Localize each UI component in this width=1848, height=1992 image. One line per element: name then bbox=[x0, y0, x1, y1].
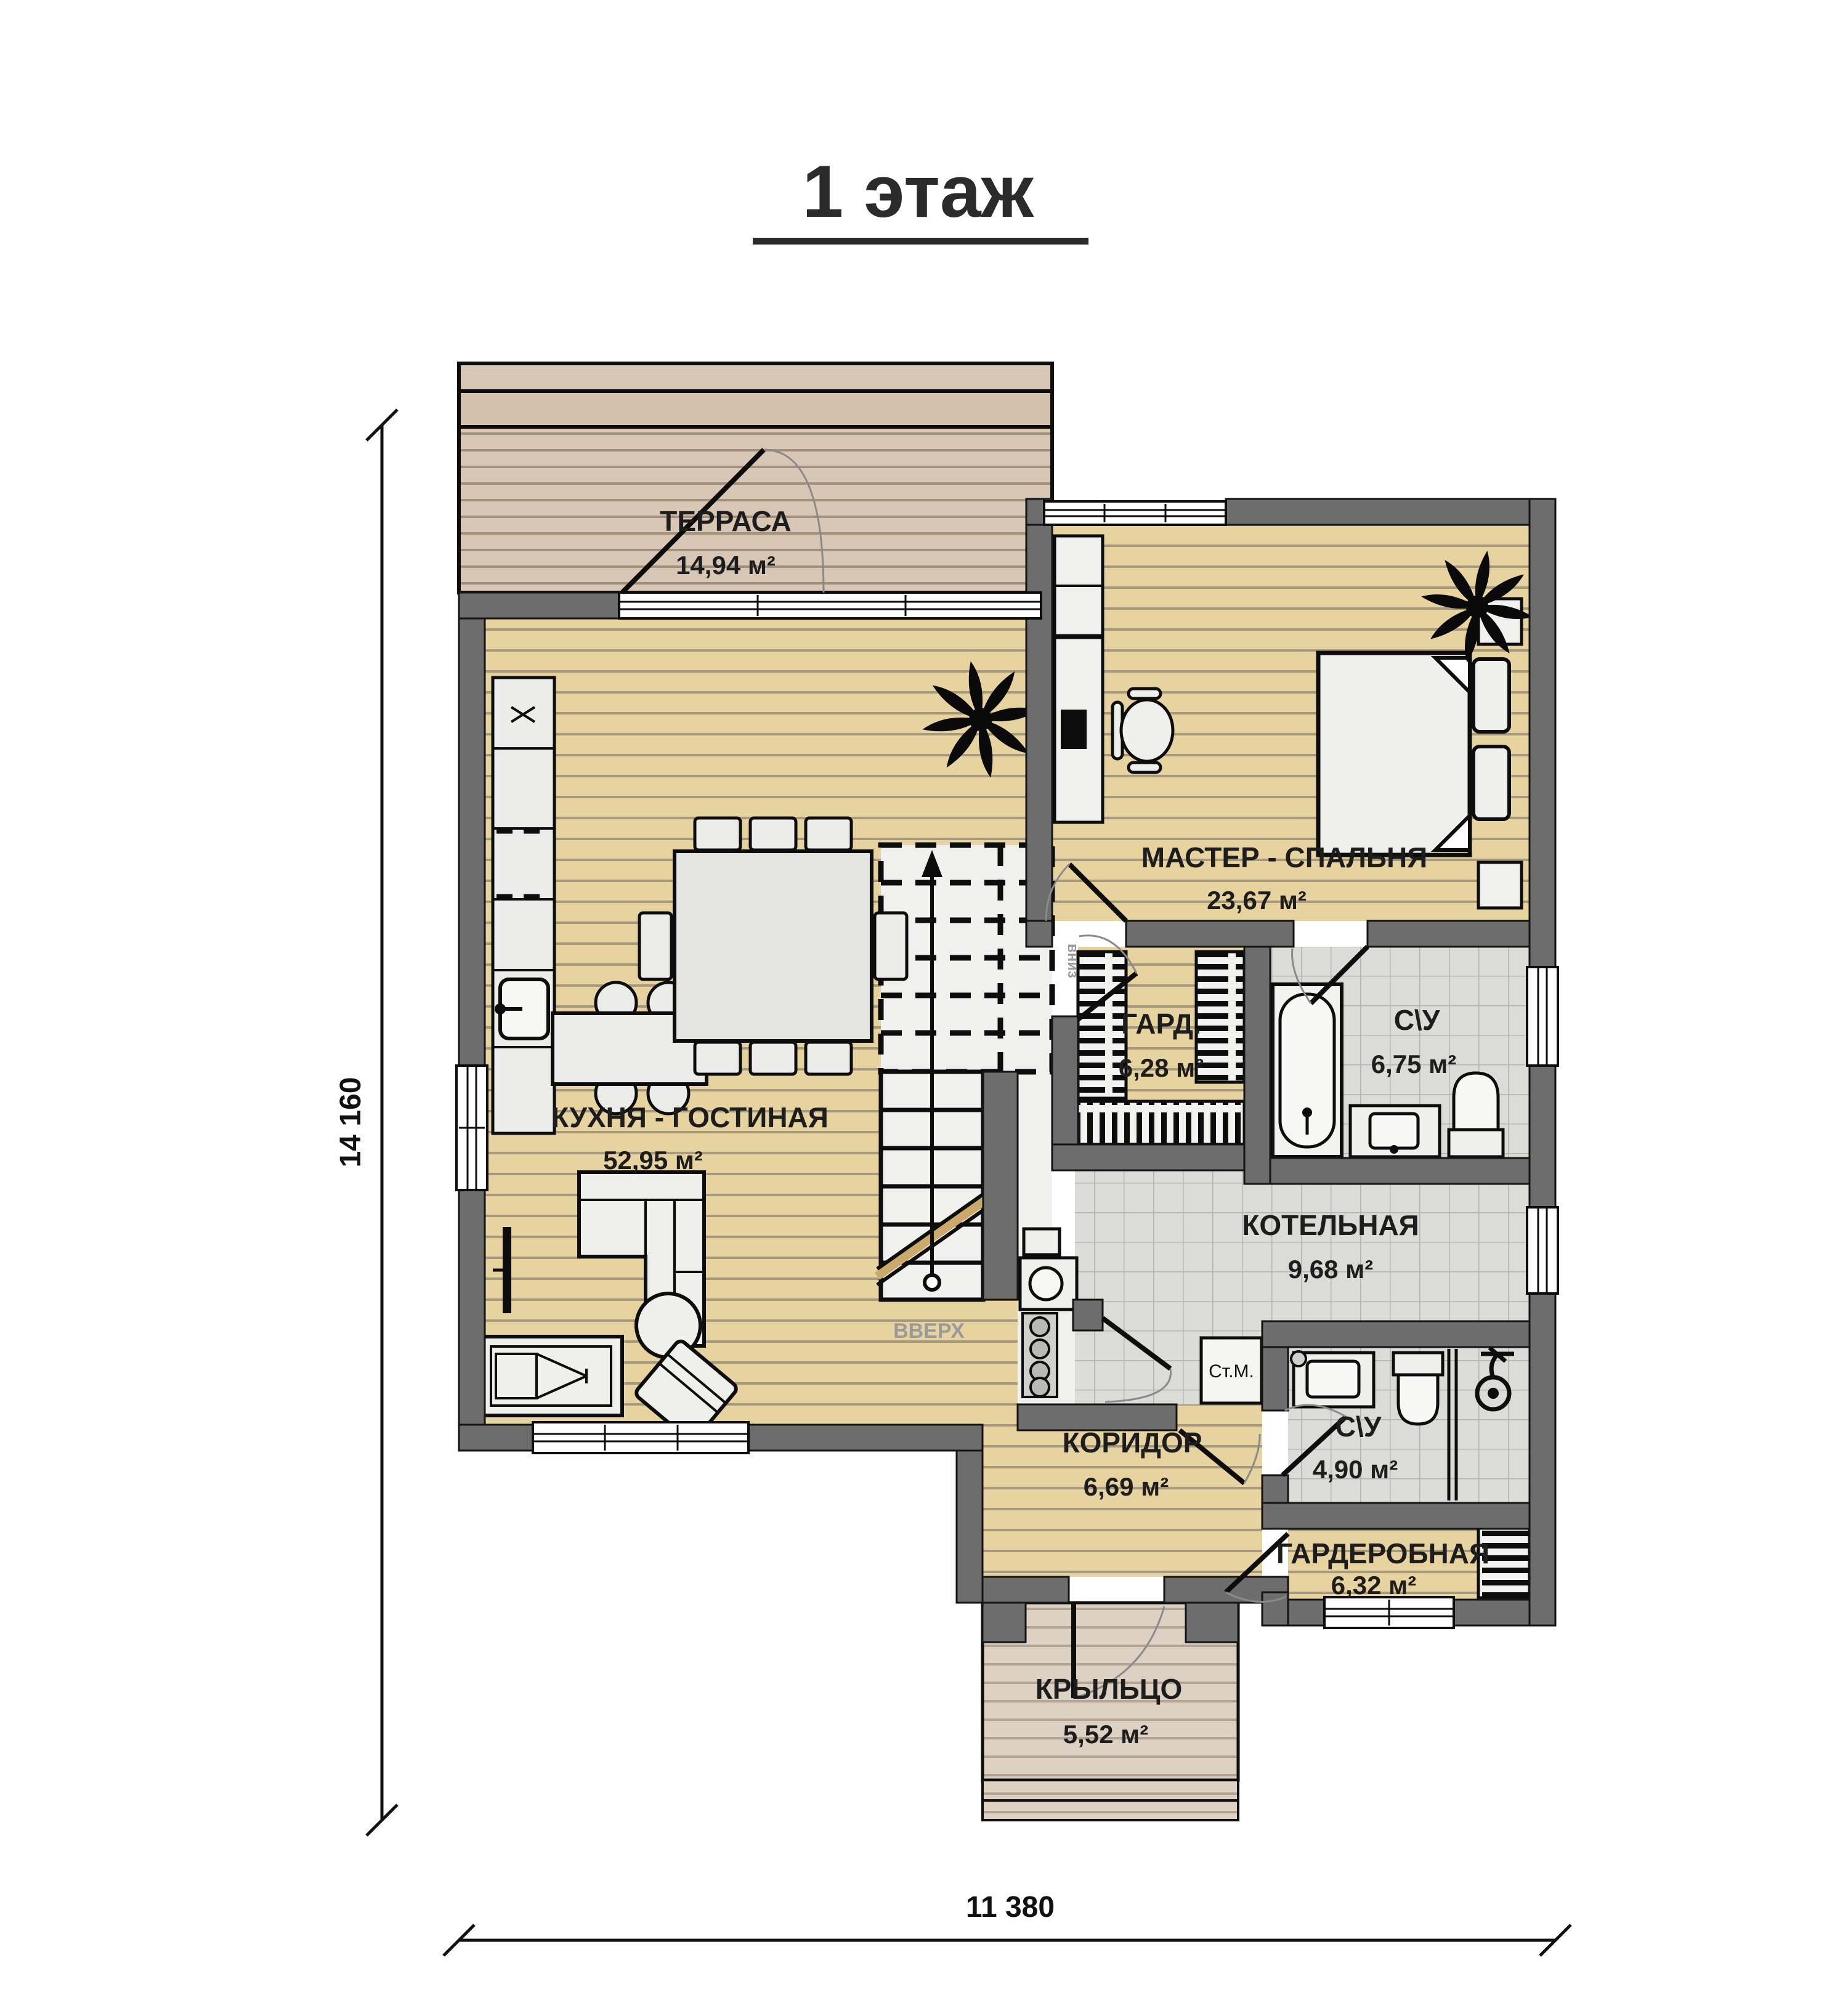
wall bbox=[957, 1451, 983, 1603]
dining-chair bbox=[750, 1042, 796, 1074]
fireplace bbox=[480, 1337, 622, 1415]
bathroom-1-vanity bbox=[1350, 1106, 1440, 1157]
wall bbox=[1270, 1158, 1530, 1184]
room-label-porch: КРЫЛЬЦО bbox=[1035, 1673, 1183, 1705]
toilet-1 bbox=[1449, 1073, 1503, 1157]
room-label-boiler: КОТЕЛЬНАЯ bbox=[1242, 1209, 1419, 1241]
window-boiler bbox=[1527, 1207, 1558, 1294]
dimension-width-label: 11 380 bbox=[966, 1891, 1055, 1924]
bedroom-closet bbox=[1055, 536, 1103, 636]
room-label-bathroom-2: С\У bbox=[1335, 1411, 1382, 1443]
room-area-kitchen: 52,95 м² bbox=[603, 1146, 703, 1175]
wall bbox=[1226, 499, 1555, 525]
wall bbox=[1530, 1294, 1555, 1626]
room-area-bathroom-1: 6,75 м² bbox=[1371, 1050, 1456, 1079]
wall bbox=[1026, 499, 1044, 525]
window-kitchen-terrace bbox=[619, 593, 1041, 618]
wall bbox=[1530, 499, 1555, 967]
wall bbox=[1530, 1066, 1555, 1207]
dining-chair bbox=[750, 818, 796, 850]
page-title: 1 этаж bbox=[753, 150, 1088, 245]
room-label-corridor: КОРИДОР bbox=[1063, 1427, 1202, 1459]
kitchen-counter bbox=[493, 678, 554, 1133]
room-label-bathroom-1: С\У bbox=[1394, 1004, 1441, 1036]
stairs-up-label: ВВЕРХ bbox=[893, 1319, 965, 1343]
room-label-kitchen: КУХНЯ - ГОСТИНАЯ bbox=[551, 1101, 829, 1133]
room-label-master: МАСТЕР - СПАЛЬНЯ bbox=[1141, 841, 1428, 873]
floor-plan-page: 1 этаж bbox=[0, 0, 1848, 1992]
bathtub bbox=[1273, 984, 1342, 1157]
room-label-closet: ГАРДЕРОБНАЯ bbox=[1276, 1537, 1489, 1569]
bathroom-2-vanity bbox=[1291, 1351, 1374, 1407]
wall bbox=[459, 593, 619, 618]
dining-chair bbox=[695, 818, 740, 850]
wall bbox=[1368, 921, 1530, 947]
monitor bbox=[1061, 710, 1087, 749]
terrace-band-1 bbox=[459, 363, 1052, 391]
wall bbox=[983, 1603, 1026, 1642]
wall bbox=[1026, 499, 1052, 921]
porch-step-2 bbox=[983, 1800, 1238, 1820]
wall bbox=[748, 1425, 983, 1451]
wall bbox=[1244, 947, 1270, 1184]
wall bbox=[1126, 921, 1294, 947]
window-left-wall bbox=[456, 1066, 487, 1190]
wall bbox=[459, 1425, 533, 1451]
room-area-bathroom-2: 4,90 м² bbox=[1313, 1455, 1398, 1484]
wall bbox=[983, 1577, 1069, 1603]
porch-step-1 bbox=[983, 1780, 1238, 1800]
dining-chair bbox=[695, 1042, 740, 1074]
dining-chair bbox=[806, 1042, 851, 1074]
room-label-terrace: ТЕРРАСА bbox=[660, 505, 791, 537]
dimension-height-label: 14 160 bbox=[334, 1077, 367, 1168]
nightstand bbox=[1478, 862, 1522, 908]
dining-chair bbox=[806, 818, 851, 850]
floor-plan-canvas: 1 этаж bbox=[0, 0, 1848, 1992]
wall bbox=[459, 618, 485, 1066]
window-closet-bottom bbox=[1324, 1597, 1454, 1628]
wall bbox=[1262, 1321, 1530, 1347]
dining-chair bbox=[875, 913, 907, 979]
pillow bbox=[1473, 659, 1509, 732]
desk bbox=[1055, 638, 1103, 822]
dining-set bbox=[639, 818, 907, 1074]
wall bbox=[1262, 1503, 1530, 1529]
room-area-terrace: 14,94 м² bbox=[676, 551, 776, 580]
room-area-wardrobe: 6,28 м² bbox=[1119, 1053, 1204, 1082]
wardrobe-unit bbox=[1061, 1101, 1244, 1144]
wall bbox=[1288, 1600, 1324, 1626]
room-label-wardrobe: ГАРД. bbox=[1121, 1008, 1201, 1040]
room-area-boiler: 9,68 м² bbox=[1288, 1255, 1373, 1284]
washing-machine-label: Ст.М. bbox=[1209, 1361, 1254, 1382]
room-area-closet: 6,32 м² bbox=[1331, 1571, 1416, 1600]
wall bbox=[1262, 1347, 1288, 1411]
room-area-master: 23,67 м² bbox=[1207, 886, 1307, 915]
pillow bbox=[1473, 747, 1509, 819]
washing-machine: Ст.М. bbox=[1201, 1338, 1262, 1403]
floor-title: 1 этаж bbox=[802, 150, 1034, 233]
wall bbox=[1026, 921, 1052, 947]
room-area-porch: 5,52 м² bbox=[1063, 1720, 1148, 1749]
dimension-vertical: 14 160 bbox=[334, 410, 397, 1836]
window-master-top bbox=[1044, 501, 1226, 525]
dining-chair bbox=[639, 913, 671, 979]
wall bbox=[1052, 1144, 1244, 1170]
wall bbox=[459, 1190, 485, 1451]
wall bbox=[1073, 1300, 1103, 1330]
stairs-down-label: вниз bbox=[1064, 944, 1081, 978]
dining-table bbox=[675, 851, 872, 1041]
dimension-horizontal: 11 380 bbox=[444, 1891, 1571, 1956]
toilet-2 bbox=[1393, 1353, 1443, 1424]
wall bbox=[1262, 1475, 1288, 1503]
room-area-corridor: 6,69 м² bbox=[1084, 1472, 1169, 1501]
title-underline bbox=[753, 238, 1088, 245]
terrace-band-2 bbox=[459, 391, 1052, 427]
window-bathroom-1 bbox=[1527, 967, 1558, 1066]
wall bbox=[1186, 1603, 1238, 1642]
window-living-bottom bbox=[533, 1422, 748, 1453]
wall bbox=[1454, 1600, 1530, 1626]
wall bbox=[1052, 1016, 1078, 1144]
stair-wall bbox=[983, 1072, 1018, 1300]
